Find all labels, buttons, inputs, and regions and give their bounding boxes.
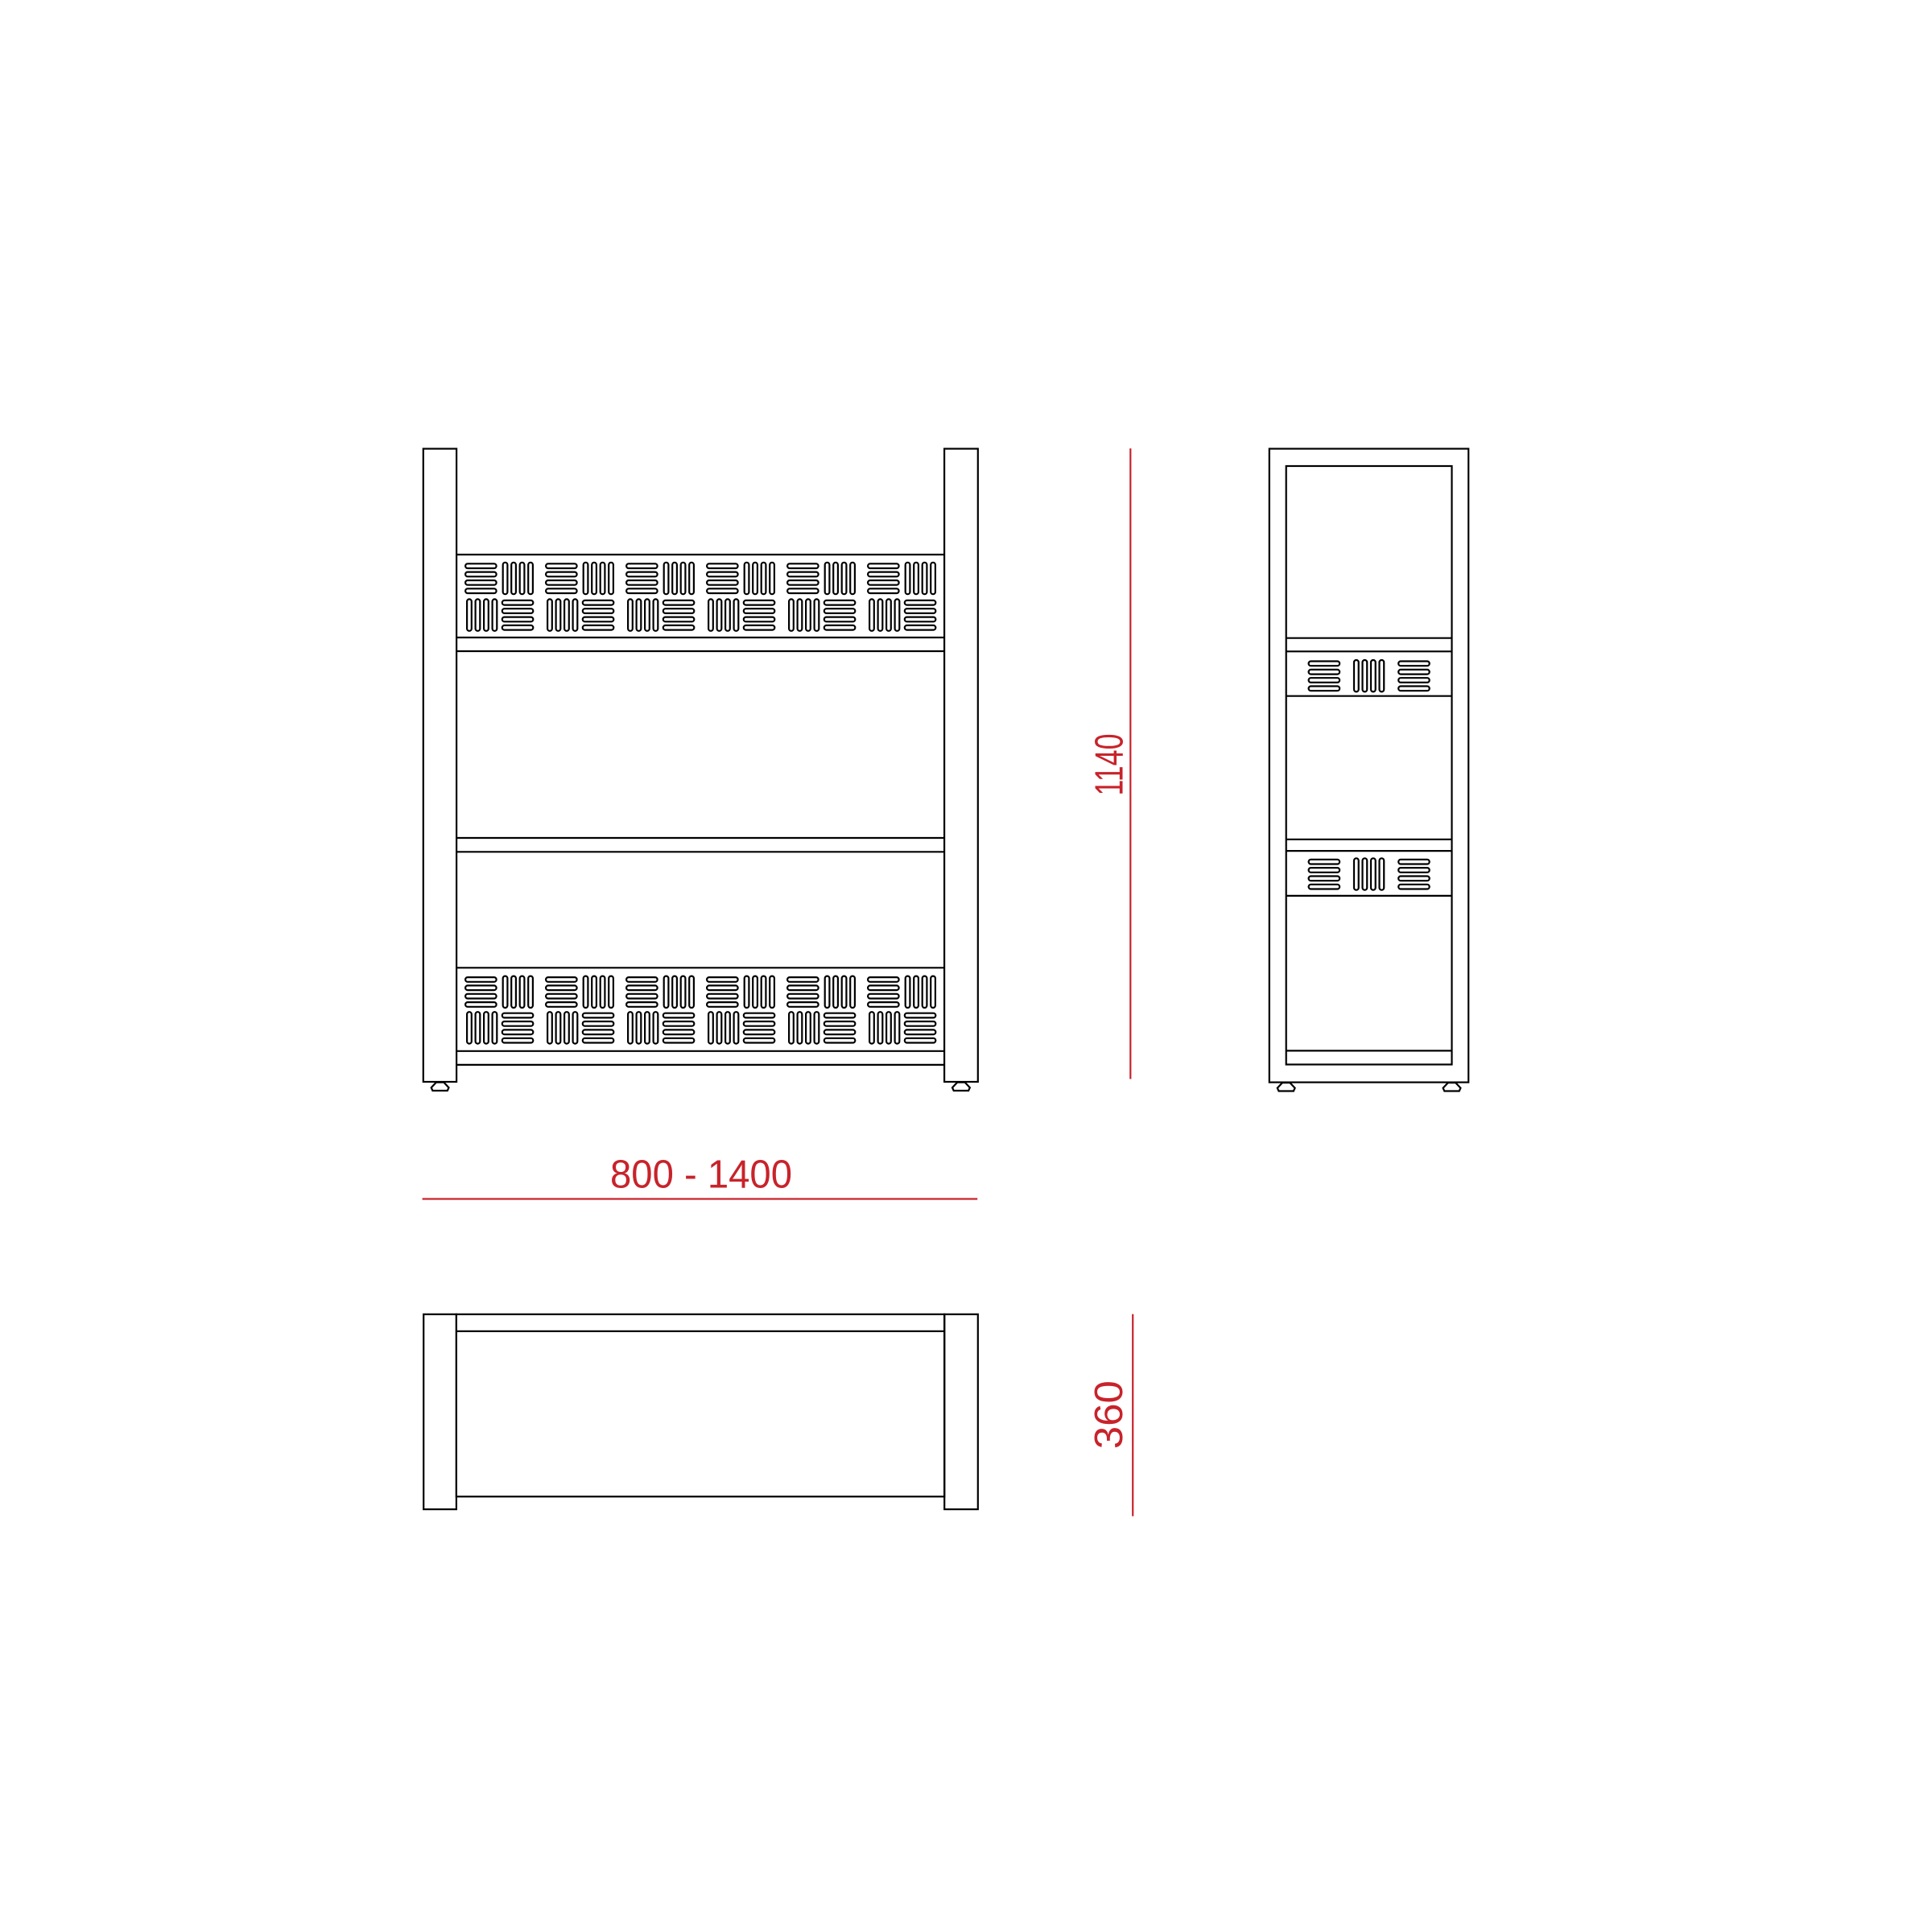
svg-text:360: 360 xyxy=(1088,1380,1131,1449)
svg-text:1140: 1140 xyxy=(1088,734,1132,796)
svg-text:800 - 1400: 800 - 1400 xyxy=(610,1153,792,1197)
